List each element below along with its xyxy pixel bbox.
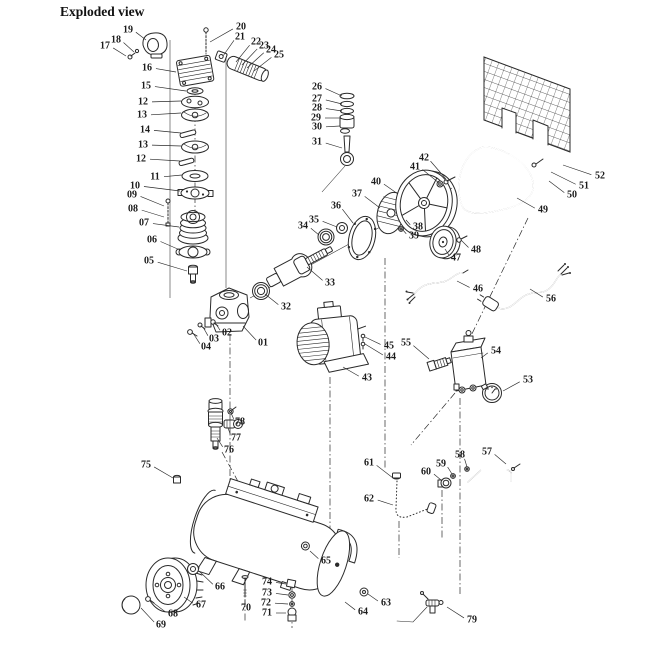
part-label-59: 59 [436, 459, 446, 470]
leader-line-59 [448, 467, 452, 474]
leader-line-08 [142, 210, 164, 217]
part-label-50: 50 [567, 190, 577, 201]
part-label-60: 60 [421, 467, 431, 478]
part-label-10: 10 [130, 181, 140, 192]
part-label-54: 54 [491, 346, 501, 357]
leader-line-18 [123, 42, 134, 52]
part-label-73: 73 [262, 588, 272, 599]
part-label-15: 15 [141, 81, 151, 92]
leader-line-35 [323, 221, 337, 227]
part-label-46: 46 [473, 284, 483, 295]
part-label-58: 58 [455, 450, 465, 461]
leader-line-48 [461, 240, 469, 248]
wiring [406, 263, 572, 312]
part-label-37: 37 [352, 189, 362, 200]
part-label-36: 36 [331, 201, 341, 212]
leader-line-01 [243, 326, 256, 340]
leader-line-26 [325, 89, 342, 96]
part-label-56: 56 [546, 294, 556, 305]
part-label-18: 18 [111, 35, 121, 46]
part-label-48: 48 [471, 245, 481, 256]
piston-assembly [340, 93, 354, 165]
part-label-07: 07 [139, 218, 149, 229]
part-label-67: 67 [196, 600, 206, 611]
part-label-26: 26 [312, 82, 322, 93]
leader-line-11 [164, 175, 182, 177]
part-label-64: 64 [358, 607, 368, 618]
leader-line-75 [154, 467, 173, 478]
leader-line-55 [413, 346, 429, 359]
leader-line-69 [141, 608, 154, 622]
leader-line-28 [326, 109, 342, 111]
part-label-40: 40 [371, 177, 381, 188]
part-label-39: 39 [409, 231, 419, 242]
crankcase-assembly [188, 288, 249, 336]
leader-line-63 [368, 594, 378, 601]
part-label-04: 04 [201, 342, 211, 353]
leader-line-43 [343, 367, 359, 376]
part-label-62: 62 [364, 494, 374, 505]
crankshaft-flywheel-assembly [253, 165, 468, 300]
leader-line-04 [193, 333, 200, 344]
part-label-34: 34 [298, 221, 308, 232]
leader-line-45 [365, 337, 381, 344]
leader-line-46 [457, 281, 470, 287]
part-label-01: 01 [258, 338, 268, 349]
part-label-51: 51 [579, 181, 589, 192]
diagram-title: Exploded view [60, 4, 145, 19]
part-label-14: 14 [140, 125, 150, 136]
tank-assembly [179, 464, 443, 622]
leader-line-31 [326, 143, 342, 148]
part-label-30: 30 [312, 122, 322, 133]
part-label-47: 47 [451, 253, 461, 264]
part-label-45: 45 [384, 341, 394, 352]
leader-line-52 [563, 165, 591, 175]
part-label-35: 35 [309, 215, 319, 226]
part-label-32: 32 [281, 302, 291, 313]
pressure-switch-assembly [427, 331, 501, 403]
leader-line-32 [265, 294, 278, 305]
guide-line-8 [411, 393, 455, 445]
part-label-02: 02 [222, 328, 232, 339]
leader-line-12 [150, 159, 180, 161]
leader-line-36 [342, 209, 353, 223]
part-label-21: 21 [235, 32, 245, 43]
part-label-75: 75 [141, 460, 151, 471]
part-label-77: 77 [231, 433, 241, 444]
part-label-78: 78 [235, 417, 245, 428]
part-label-55: 55 [401, 338, 411, 349]
leader-line-53 [503, 382, 520, 391]
part-label-68: 68 [168, 609, 178, 620]
part-label-05: 05 [144, 256, 154, 267]
part-label-25: 25 [274, 50, 284, 61]
part-label-61: 61 [364, 458, 374, 469]
part-label-13: 13 [137, 110, 147, 121]
part-label-65: 65 [321, 556, 331, 567]
leader-line-60 [434, 474, 441, 480]
motor-assembly [292, 298, 370, 375]
part-label-33: 33 [325, 278, 335, 289]
part-label-42: 42 [419, 153, 429, 164]
part-label-44: 44 [386, 352, 396, 363]
part-label-08: 08 [128, 204, 138, 215]
wheel-assembly [122, 558, 203, 614]
part-label-12: 12 [136, 154, 146, 165]
leader-line-44 [365, 344, 383, 355]
part-label-49: 49 [538, 205, 548, 216]
leader-line-37 [365, 196, 380, 208]
belt-guard-grille [484, 57, 570, 167]
part-label-13: 13 [138, 140, 148, 151]
leader-line-13 [151, 113, 181, 115]
leader-line-19 [136, 32, 146, 40]
exploded-view-page: Exploded view [0, 0, 661, 661]
leader-line-57 [495, 454, 506, 464]
leader-line-13 [152, 145, 181, 146]
cylinder-assembly [166, 199, 210, 283]
valve-plate-stack [178, 88, 213, 199]
leader-line-30 [326, 126, 340, 127]
drive-belt [459, 147, 534, 213]
leader-line-79 [447, 607, 464, 618]
leader-line-27 [326, 100, 342, 104]
part-label-72: 72 [261, 598, 271, 609]
leader-line-64 [345, 602, 355, 610]
part-label-12: 12 [138, 97, 148, 108]
leader-line-21 [223, 40, 234, 56]
leader-line-73 [276, 593, 288, 595]
air-filter-assembly [128, 33, 167, 59]
leader-line-12 [152, 101, 181, 102]
part-label-43: 43 [362, 373, 372, 384]
part-label-57: 57 [482, 447, 492, 458]
leader-line-51 [551, 172, 576, 184]
part-label-69: 69 [156, 620, 166, 631]
leader-line-50 [549, 181, 564, 193]
leader-line-34 [311, 228, 319, 235]
leader-line-16 [156, 69, 176, 72]
part-label-79: 79 [467, 615, 477, 626]
leader-line-09 [141, 196, 164, 206]
part-label-17: 17 [100, 41, 110, 52]
part-label-71: 71 [262, 608, 272, 619]
part-label-53: 53 [523, 375, 533, 386]
leader-line-20 [210, 29, 233, 42]
part-label-19: 19 [123, 25, 133, 36]
leader-line-05 [158, 262, 187, 271]
leader-line-14 [154, 130, 181, 133]
guide-line-5 [468, 218, 528, 342]
leader-line-17 [113, 48, 126, 56]
leader-line-15 [155, 87, 186, 91]
part-label-16: 16 [142, 63, 152, 74]
guide-line-15 [322, 166, 345, 192]
part-label-63: 63 [381, 598, 391, 609]
part-label-31: 31 [312, 137, 322, 148]
leader-line-03 [203, 327, 208, 336]
part-label-74: 74 [262, 577, 272, 588]
part-label-66: 66 [215, 582, 225, 593]
exploded-view-diagram: Exploded view [0, 0, 661, 661]
outlet-pipes [393, 464, 521, 517]
part-label-06: 06 [147, 235, 157, 246]
leader-line-72 [275, 603, 288, 604]
part-label-11: 11 [150, 172, 159, 183]
part-label-70: 70 [241, 603, 251, 614]
leader-line-62 [378, 500, 393, 505]
part-label-52: 52 [595, 171, 605, 182]
leader-line-10 [144, 186, 180, 191]
part-label-76: 76 [224, 445, 234, 456]
